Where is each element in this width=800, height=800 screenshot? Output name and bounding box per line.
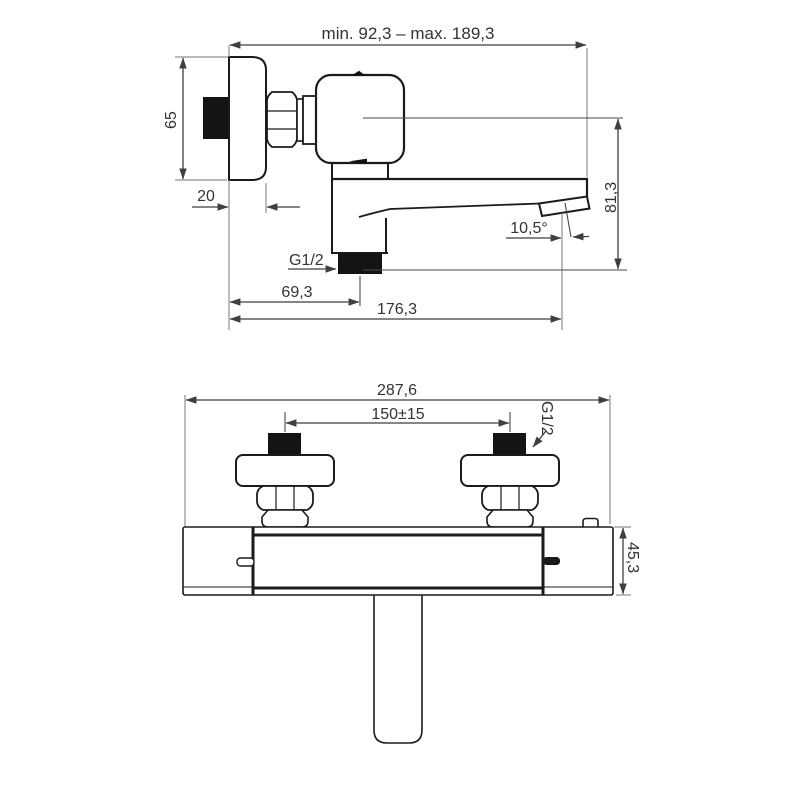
- spout-column-front: [374, 595, 422, 743]
- front-view-parts: [183, 433, 613, 743]
- dim-label-spout-angle: 10,5°: [510, 220, 548, 237]
- threaded-outlet: [338, 253, 382, 274]
- dim-label-spout-reach: 176,3: [377, 301, 417, 318]
- dim-label-inlet-spacing: 150±15: [371, 406, 424, 423]
- aerator-tip: [539, 197, 590, 217]
- handle-body: [316, 75, 404, 163]
- faucet-technical-drawing: min. 92,3 – max. 189,3 65 20 G1/2 69,3 1…: [0, 0, 800, 800]
- escutcheon-left: [236, 455, 334, 486]
- dim-label-width-range: min. 92,3 – max. 189,3: [322, 24, 495, 43]
- dim-label-total-width: 287,6: [377, 382, 417, 399]
- thread-label-side: G1/2: [289, 252, 324, 269]
- dim-label-thread-offset: 69,3: [281, 284, 312, 301]
- dim-label-outlet-height: 81,3: [603, 182, 620, 213]
- technical-drawing-page: min. 92,3 – max. 189,3 65 20 G1/2 69,3 1…: [0, 0, 800, 800]
- spout-underside: [359, 204, 540, 218]
- hex-nut: [267, 92, 297, 147]
- front-view-drawing: 287,6 150±15 G1/2 45,3: [183, 382, 641, 743]
- inlet-pipe-right: [493, 433, 526, 455]
- union-nut-left: [257, 486, 313, 510]
- union-nut-right: [482, 486, 538, 510]
- handle-indicator-top: [351, 71, 366, 76]
- collar-right: [487, 510, 533, 527]
- diverter-button: [583, 519, 598, 528]
- escutcheon-right: [461, 455, 559, 486]
- wall-supply-pipe: [203, 97, 229, 139]
- collar-left: [262, 510, 308, 527]
- thread-label-front: G1/2: [538, 401, 555, 436]
- dim-label-flange-height: 65: [163, 111, 180, 129]
- dim-label-body-height: 45,3: [624, 542, 641, 573]
- side-pin-right: [543, 557, 560, 565]
- wall-flange: [229, 57, 266, 180]
- body-column: [332, 163, 388, 253]
- side-pin-left: [237, 558, 254, 566]
- inlet-pipe-left: [268, 433, 301, 455]
- side-view-parts: [203, 57, 590, 274]
- side-view-drawing: min. 92,3 – max. 189,3 65 20 G1/2 69,3 1…: [163, 24, 627, 330]
- dim-label-flange-depth: 20: [197, 188, 215, 205]
- dim-line-angle: [573, 237, 589, 238]
- spout: [332, 179, 587, 199]
